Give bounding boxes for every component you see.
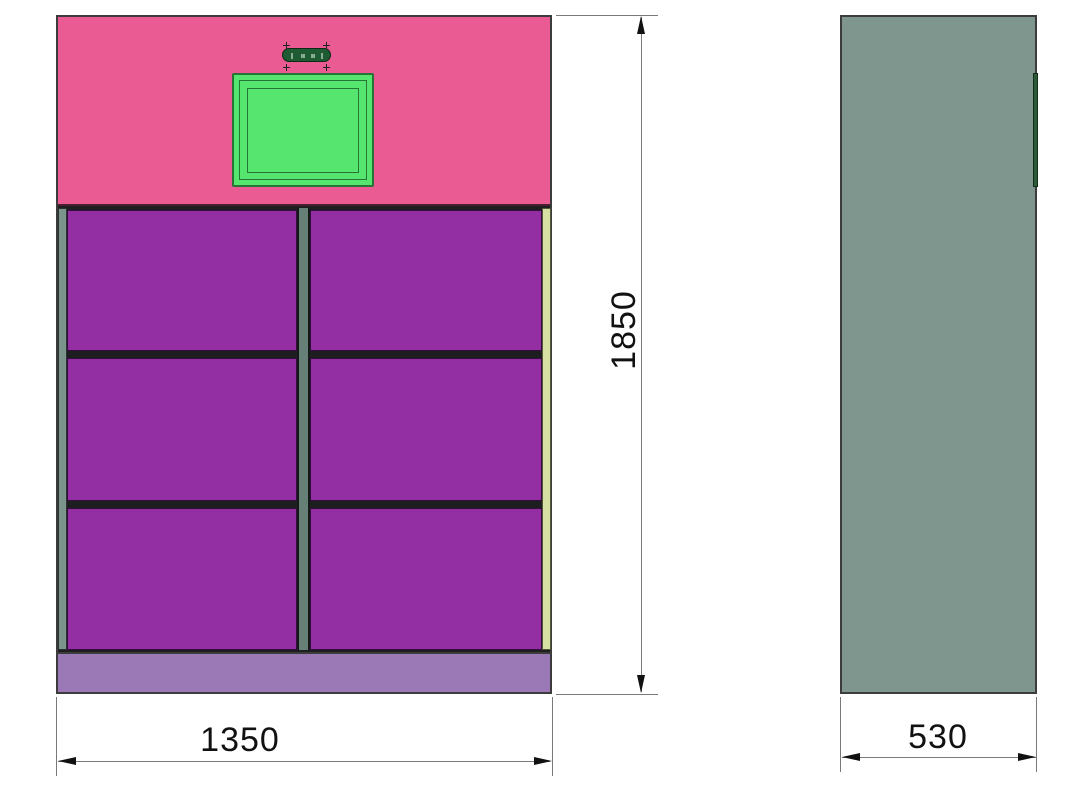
cabinet-base — [56, 652, 552, 694]
extension-line-left — [56, 697, 57, 776]
dimension-line-width — [58, 761, 550, 762]
front-right-edge-strip — [542, 208, 551, 650]
extension-line-right — [1036, 697, 1037, 772]
extension-line-bottom — [556, 694, 658, 695]
side-view-screen-edge — [1033, 73, 1038, 187]
mount-mark-icon — [283, 42, 290, 49]
front-center-divider — [297, 208, 310, 650]
dimension-line-depth — [842, 757, 1036, 758]
extension-line-left — [840, 697, 841, 772]
locker-door-6 — [310, 508, 542, 650]
front-left-frame-strip — [58, 208, 67, 650]
dim-arrow-down-icon — [637, 675, 645, 693]
pill-detail-dot — [301, 54, 305, 58]
locker-door-1 — [67, 210, 297, 351]
dim-arrow-up-icon — [637, 16, 645, 34]
dim-arrow-left-icon — [842, 753, 860, 761]
dim-arrow-left-icon — [58, 757, 76, 765]
locker-door-4 — [310, 358, 542, 501]
pill-detail-dot — [311, 54, 315, 58]
drawing-canvas: 1850 1350 530 — [0, 0, 1065, 800]
locker-door-3 — [67, 358, 297, 501]
dimension-width-label: 1350 — [190, 722, 290, 758]
pill-detail-bar — [321, 53, 323, 59]
dim-arrow-right-icon — [1018, 753, 1036, 761]
dimension-depth-label: 530 — [888, 719, 988, 755]
locker-door-5 — [67, 508, 297, 650]
touchscreen-display — [247, 88, 359, 173]
dim-arrow-right-icon — [534, 757, 552, 765]
camera-pill — [282, 48, 331, 62]
mount-mark-icon — [283, 64, 290, 71]
dimension-height-label: 1850 — [607, 290, 641, 370]
pill-detail-bar — [291, 53, 293, 59]
mount-mark-icon — [323, 42, 330, 49]
mount-mark-icon — [323, 64, 330, 71]
side-view-cabinet — [840, 15, 1037, 694]
locker-door-2 — [310, 210, 542, 351]
extension-line-right — [552, 697, 553, 776]
